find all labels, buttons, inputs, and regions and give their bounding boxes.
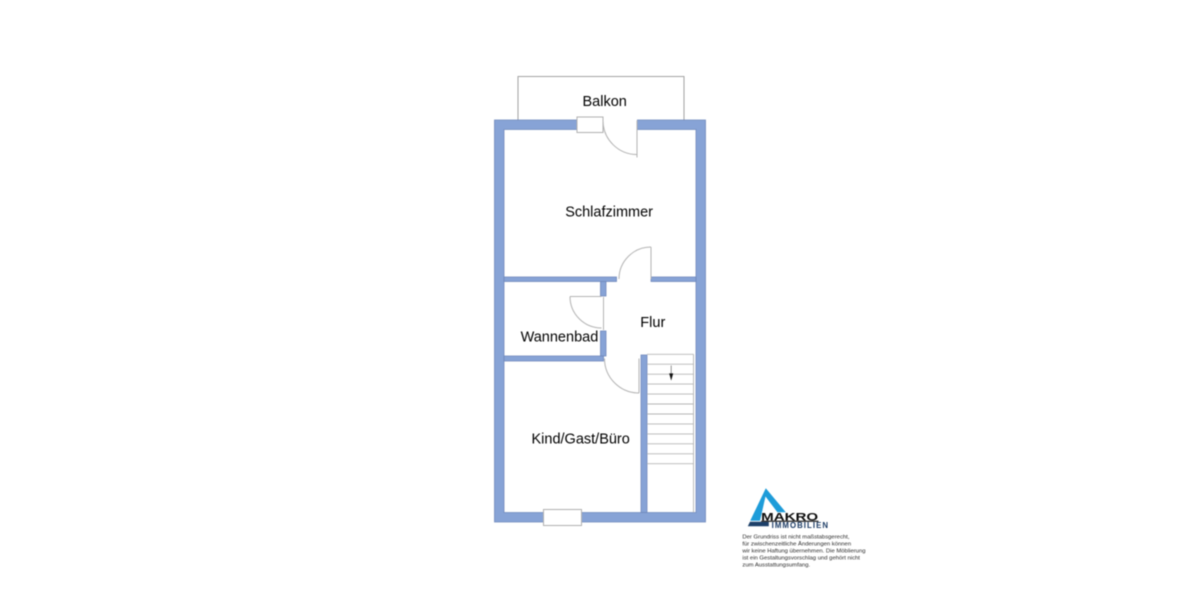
svg-text:für zwischenzeitliche Änderung: für zwischenzeitliche Änderungen können — [742, 540, 851, 547]
svg-text:Schlafzimmer: Schlafzimmer — [565, 205, 653, 221]
svg-text:Der Grundriss ist nicht maßsta: Der Grundriss ist nicht maßstabsgerecht, — [742, 534, 849, 540]
svg-text:Flur: Flur — [640, 315, 665, 331]
svg-text:Wannenbad: Wannenbad — [521, 329, 599, 345]
svg-text:wir keine Haftung übernehmen.: wir keine Haftung übernehmen. Die Möblie… — [741, 549, 865, 555]
svg-text:zum Ausstattungsumfang.: zum Ausstattungsumfang. — [742, 562, 810, 568]
svg-text:ist ein Gestaltungsvorschlag u: ist ein Gestaltungsvorschlag und gehört … — [742, 556, 860, 562]
svg-text:Balkon: Balkon — [583, 94, 627, 110]
svg-text:IMMOBILIEN: IMMOBILIEN — [772, 521, 829, 530]
svg-text:Kind/Gast/Büro: Kind/Gast/Büro — [532, 432, 630, 448]
